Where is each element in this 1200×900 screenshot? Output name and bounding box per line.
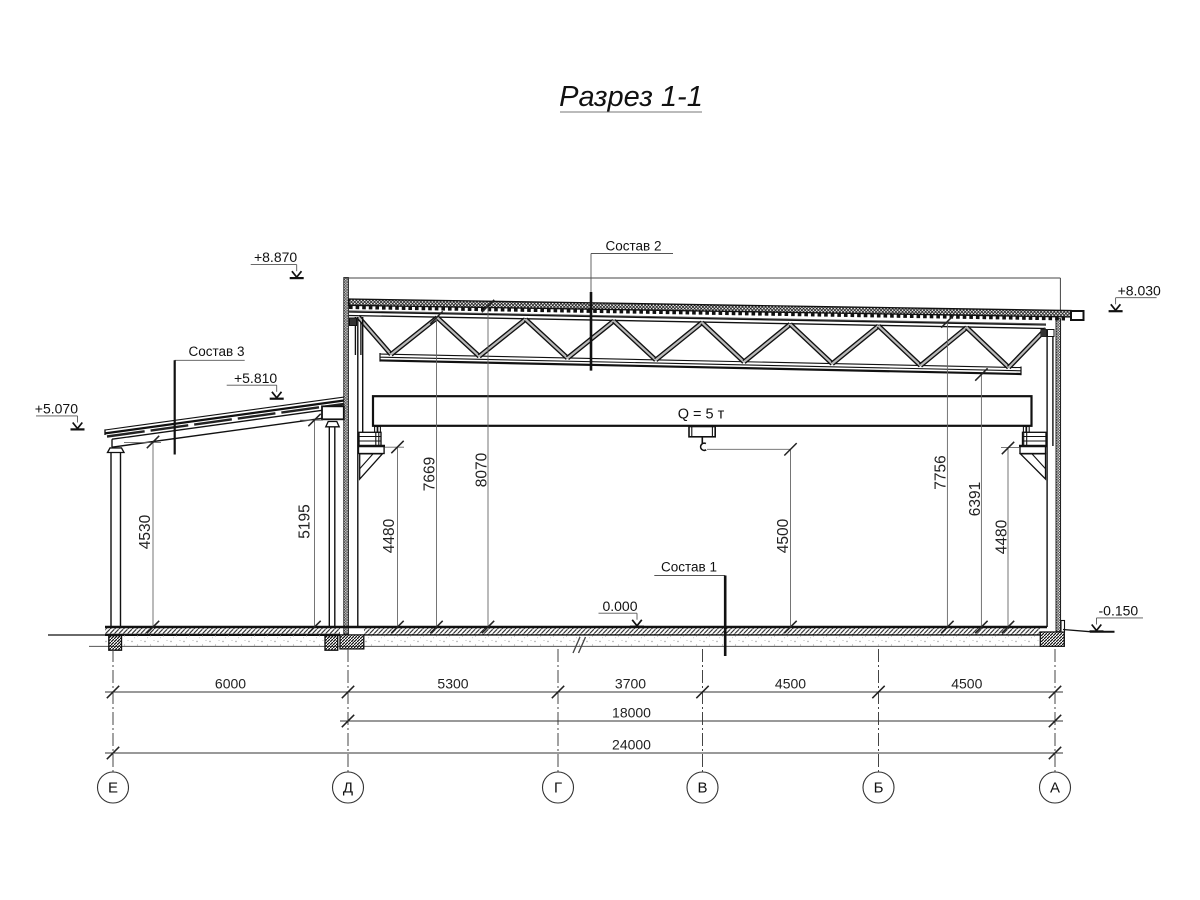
svg-text:Состав 3: Состав 3	[189, 344, 245, 359]
svg-text:18000: 18000	[612, 705, 651, 721]
svg-text:+8.030: +8.030	[1118, 282, 1161, 298]
svg-text:8070: 8070	[474, 452, 491, 487]
svg-text:3700: 3700	[615, 675, 646, 691]
svg-text:4500: 4500	[951, 675, 982, 691]
svg-text:Б: Б	[874, 780, 884, 797]
svg-text:Состав 2: Состав 2	[606, 239, 662, 254]
svg-text:А: А	[1050, 780, 1060, 797]
svg-text:4480: 4480	[381, 518, 398, 553]
svg-text:0.000: 0.000	[602, 598, 637, 614]
svg-text:Разрез 1-1: Разрез 1-1	[559, 81, 703, 113]
svg-text:Г: Г	[554, 780, 562, 797]
svg-text:6391: 6391	[967, 482, 984, 516]
svg-text:4500: 4500	[775, 675, 806, 691]
svg-text:5300: 5300	[437, 675, 468, 691]
svg-text:В: В	[697, 780, 707, 797]
svg-text:+5.810: +5.810	[234, 370, 277, 386]
svg-text:+5.070: +5.070	[35, 401, 78, 417]
svg-text:Е: Е	[108, 780, 118, 797]
svg-text:4480: 4480	[993, 519, 1010, 554]
svg-text:-0.150: -0.150	[1099, 603, 1139, 619]
svg-text:7669: 7669	[422, 457, 439, 491]
svg-text:Состав 1: Состав 1	[661, 560, 717, 575]
svg-text:4500: 4500	[775, 518, 792, 553]
svg-text:24000: 24000	[612, 737, 651, 753]
svg-text:6000: 6000	[215, 675, 246, 691]
svg-text:Д: Д	[343, 780, 353, 797]
svg-text:+8.870: +8.870	[254, 249, 297, 265]
svg-text:Q = 5 т: Q = 5 т	[678, 407, 725, 423]
svg-text:7756: 7756	[933, 455, 950, 489]
svg-text:4530: 4530	[137, 514, 154, 549]
svg-text:5195: 5195	[297, 504, 314, 538]
